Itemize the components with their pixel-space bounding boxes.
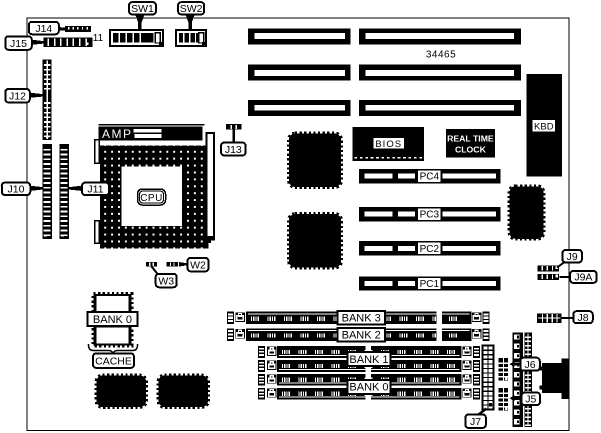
svg-text:11: 11: [93, 33, 104, 44]
svg-text:PC2: PC2: [420, 244, 440, 255]
svg-text:BANK 3: BANK 3: [342, 313, 381, 325]
svg-text:REAL TIME: REAL TIME: [447, 133, 494, 143]
svg-text:BANK 0: BANK 0: [349, 382, 388, 394]
svg-text:J13: J13: [225, 144, 242, 156]
svg-text:BANK 1: BANK 1: [349, 354, 388, 366]
svg-text:J12: J12: [9, 90, 26, 102]
svg-text:CLOCK: CLOCK: [455, 144, 487, 154]
svg-text:J15: J15: [10, 38, 27, 50]
svg-text:J11: J11: [87, 184, 103, 196]
svg-text:BIOS: BIOS: [375, 139, 402, 150]
svg-text:KBD: KBD: [534, 121, 554, 132]
svg-text:W2: W2: [190, 259, 206, 271]
svg-text:W3: W3: [158, 275, 174, 287]
svg-text:CACHE: CACHE: [95, 355, 132, 367]
svg-text:J9: J9: [567, 251, 578, 263]
svg-text:J8: J8: [577, 312, 588, 324]
svg-text:BANK 2: BANK 2: [342, 329, 381, 341]
svg-text:AMP: AMP: [102, 127, 133, 141]
svg-text:J5: J5: [525, 394, 536, 406]
svg-text:34465: 34465: [426, 50, 456, 61]
svg-text:PC1: PC1: [420, 279, 440, 290]
svg-text:J6: J6: [524, 359, 535, 371]
svg-text:J10: J10: [8, 184, 25, 196]
svg-text:SW2: SW2: [180, 3, 203, 15]
svg-text:PC4: PC4: [420, 172, 440, 183]
svg-text:J7: J7: [470, 416, 481, 428]
svg-text:J14: J14: [35, 23, 52, 35]
svg-text:J9A: J9A: [574, 272, 592, 284]
svg-text:BANK 0: BANK 0: [93, 314, 132, 326]
svg-text:PC3: PC3: [420, 210, 440, 221]
svg-text:CPU: CPU: [140, 193, 163, 204]
svg-text:SW1: SW1: [131, 3, 154, 15]
